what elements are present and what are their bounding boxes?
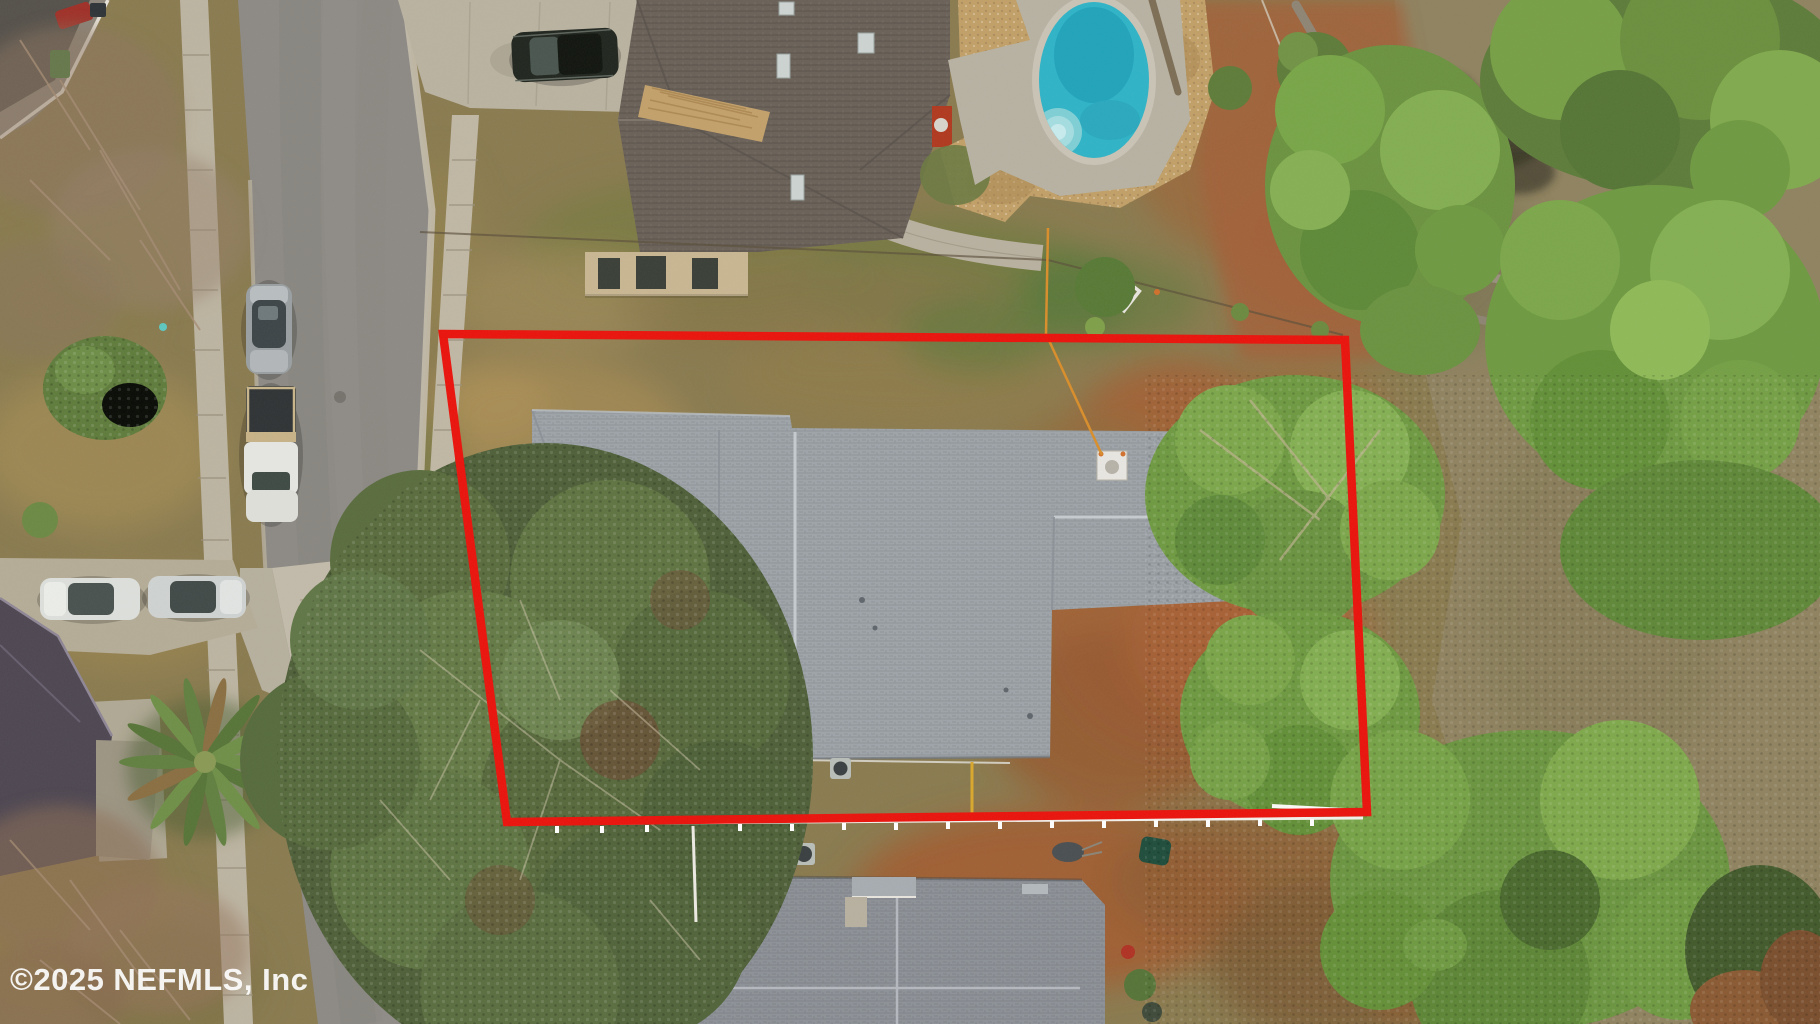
aerial-photo: ©2025 NEFMLS, Inc xyxy=(0,0,1820,1024)
film-grain-overlay xyxy=(0,0,1820,1024)
